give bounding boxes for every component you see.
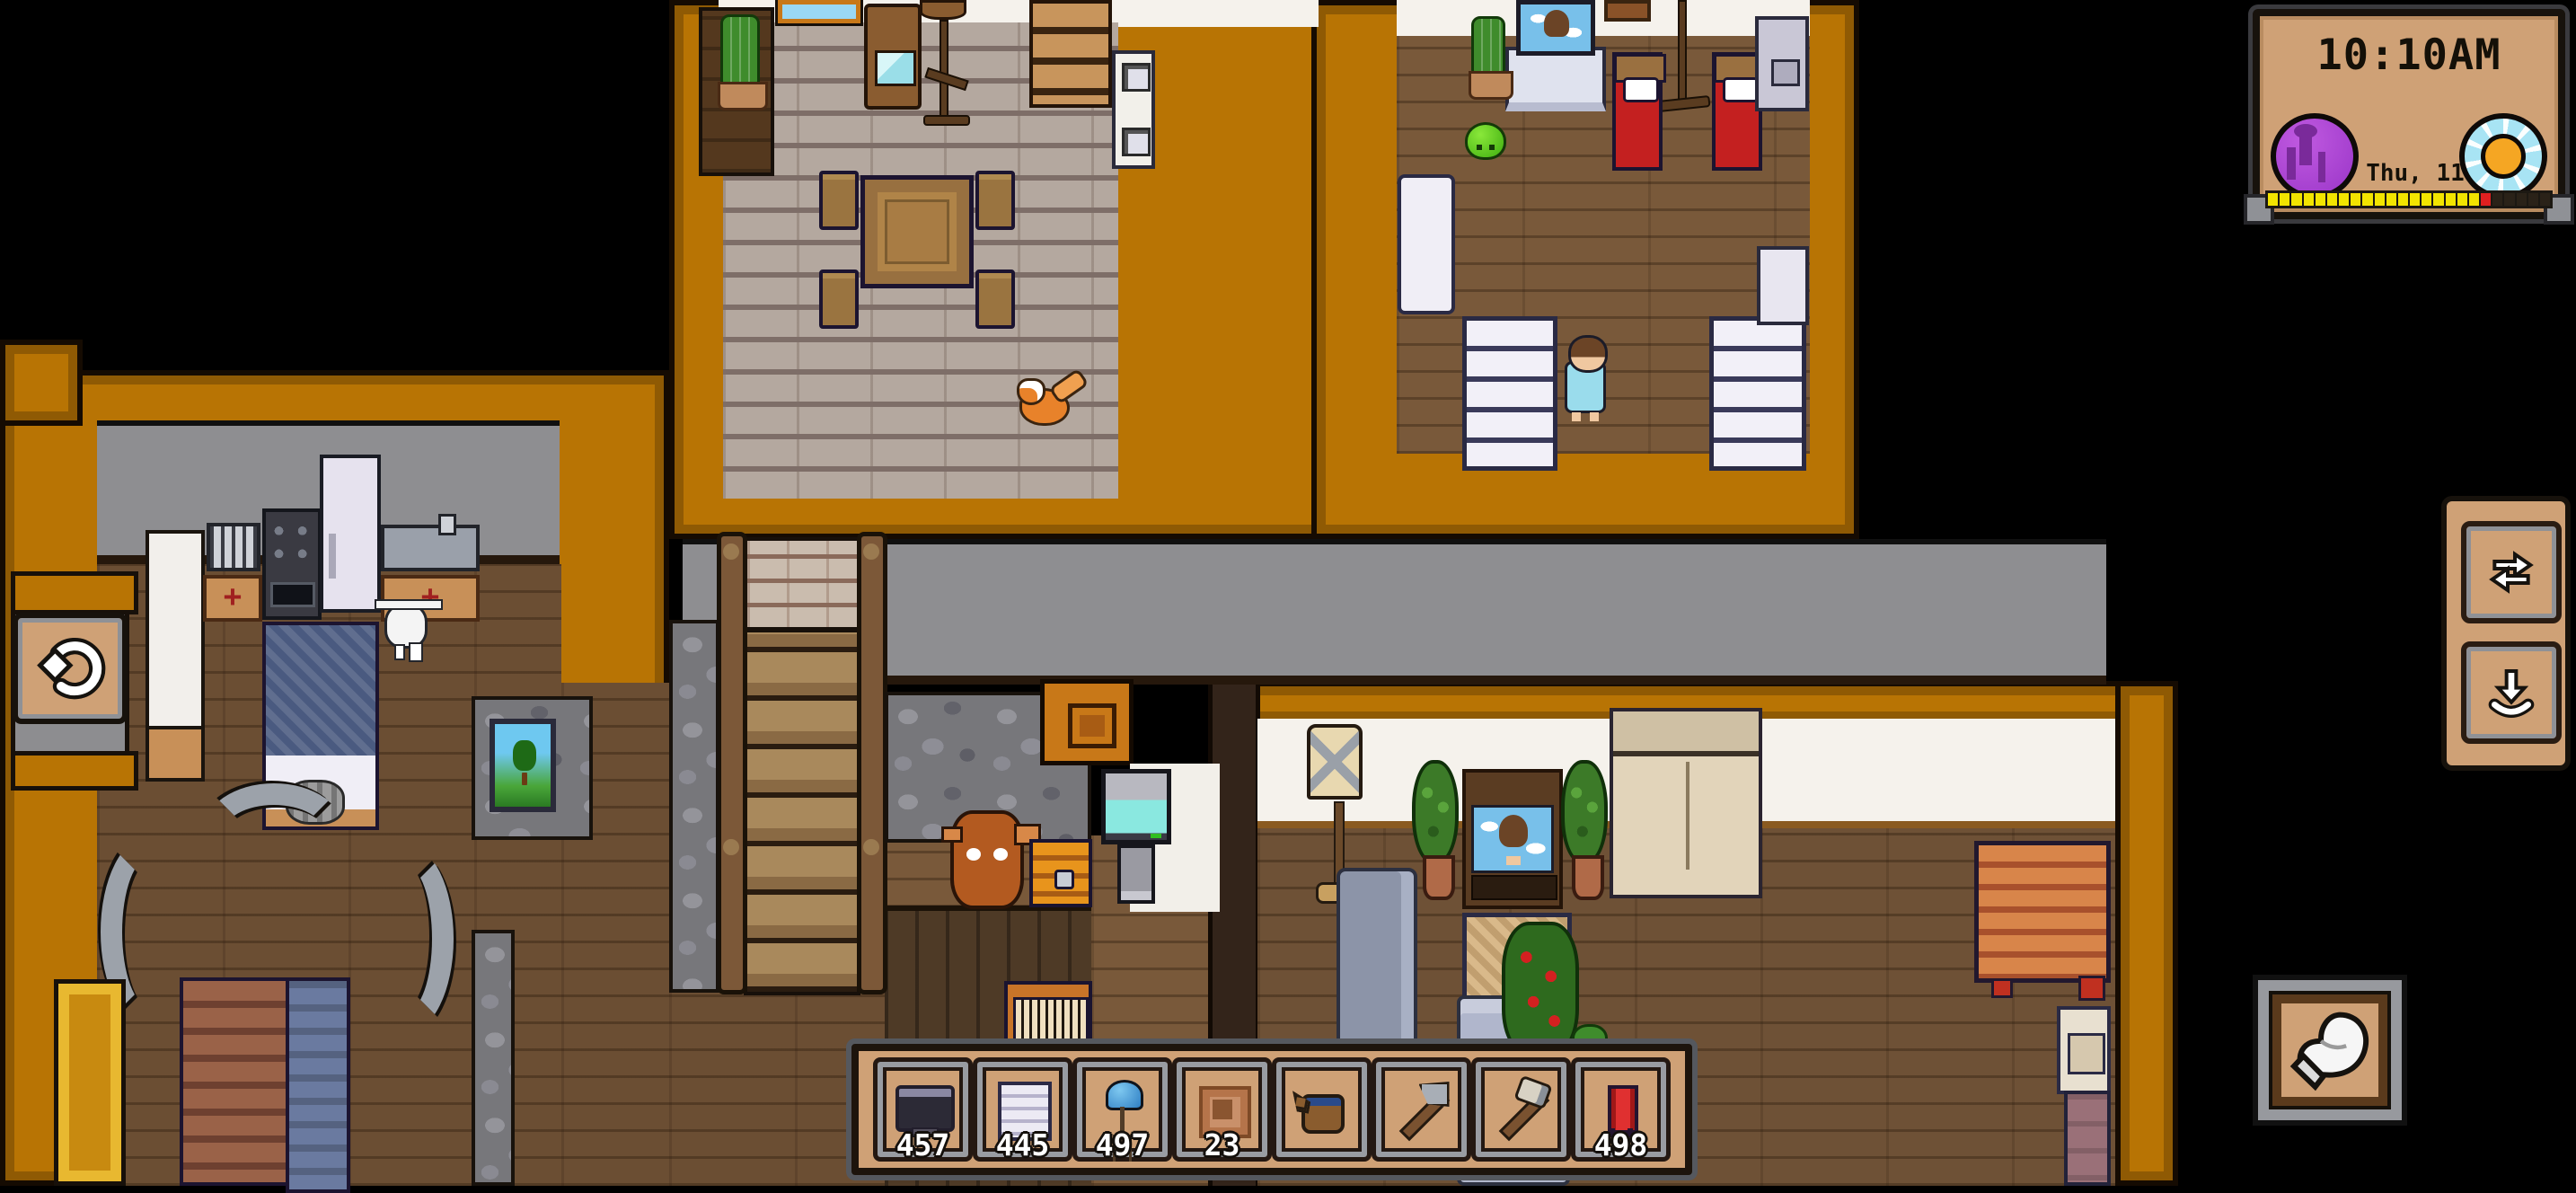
kitchen-counter-vert <box>146 530 205 729</box>
bedroom-dresser <box>1757 246 1809 325</box>
living-tv-screen <box>1471 805 1554 873</box>
mattress <box>1398 174 1455 314</box>
white-pedestal <box>2057 1006 2111 1094</box>
vanity-mirror <box>864 4 922 110</box>
item-quantity: 457 <box>878 1127 968 1162</box>
pickup-button[interactable] <box>2461 641 2562 744</box>
nightstand <box>1755 16 1809 111</box>
stairs-steps <box>744 629 860 995</box>
dock-structure <box>180 977 350 1186</box>
cabinet-1 <box>203 575 262 622</box>
dish-rack <box>207 523 260 571</box>
stairs-brick-top <box>744 537 860 631</box>
sideboard <box>1610 708 1762 898</box>
hotbar-slot-2[interactable]: 445 <box>973 1057 1072 1162</box>
landing-gray-wall <box>683 539 2106 685</box>
coat-rack-dining <box>940 20 948 120</box>
hand-button[interactable] <box>2253 975 2407 1126</box>
chair-sw <box>819 270 859 329</box>
tomato-plants <box>1502 922 1579 1056</box>
store-down-arrow-icon <box>2483 664 2540 721</box>
plant-left <box>1412 760 1459 864</box>
item-quantity: 23 <box>1177 1127 1267 1162</box>
hotbar-slot-5[interactable] <box>1272 1057 1372 1162</box>
item-quantity: 445 <box>977 1127 1068 1162</box>
bedroom-cactus <box>1471 16 1505 79</box>
hotbar: 457 445 497 23 498 <box>851 1044 1692 1175</box>
chair-ne <box>975 171 1015 230</box>
icon-frame-cabinet <box>1112 50 1155 169</box>
orange-wall-frag <box>0 340 83 426</box>
plant-right <box>1561 760 1608 864</box>
coat-rack-bedroom <box>1678 0 1687 106</box>
dining-window <box>778 0 860 23</box>
moon-orb-icon <box>2271 113 2359 199</box>
swap-arrows-icon <box>2483 543 2540 601</box>
item-quantity: 498 <box>1575 1127 1666 1162</box>
stairs-rail-left <box>717 532 747 994</box>
wooden-chest <box>1029 839 1092 907</box>
monitor-station <box>1101 769 1171 844</box>
claw-arc-east <box>359 844 454 1033</box>
cobble-left-of-stairs <box>669 620 719 993</box>
dining-shelf-unit <box>1029 0 1112 108</box>
slime-pet <box>1465 122 1506 160</box>
chair-se <box>975 270 1015 329</box>
gray-couch <box>1337 868 1417 1052</box>
hammer-item-icon <box>1492 1080 1551 1139</box>
undo-button[interactable] <box>13 613 128 724</box>
dining-table <box>860 175 974 288</box>
calf-pet <box>950 810 1024 909</box>
floor-lamp <box>1307 724 1363 800</box>
chair-nw <box>819 171 859 230</box>
clock-panel: 10:10AM Thu, 11 <box>2253 9 2565 219</box>
tree-picture <box>490 719 556 812</box>
sink <box>381 525 480 571</box>
orange-door-bl <box>54 979 126 1186</box>
kitchen-counter-base <box>146 726 205 782</box>
hotbar-slot-7[interactable] <box>1471 1057 1571 1162</box>
day-progress-bar <box>2265 190 2553 208</box>
watering-can-item-icon <box>1292 1080 1352 1139</box>
clock-time: 10:10AM <box>2260 31 2558 80</box>
cobble-column <box>472 930 515 1186</box>
hotbar-slot-8[interactable]: 498 <box>1571 1057 1671 1162</box>
mauve-column <box>2064 1091 2111 1186</box>
hotbar-slot-4[interactable]: 23 <box>1172 1057 1272 1162</box>
side-button-panel <box>2441 496 2571 771</box>
fridge <box>320 455 381 613</box>
crib-left <box>1462 316 1557 471</box>
swap-button[interactable] <box>2461 521 2562 623</box>
robot-drone <box>384 604 428 649</box>
hotbar-slot-3[interactable]: 497 <box>1072 1057 1172 1162</box>
stove <box>262 508 322 620</box>
glove-icon <box>2277 996 2382 1104</box>
undo-arrow-icon <box>32 632 108 704</box>
fox <box>1019 388 1070 426</box>
bedroom-tv <box>1516 0 1595 56</box>
bedroom-tv-table <box>1505 47 1606 111</box>
dining-cactus <box>720 14 760 90</box>
monitor-pedestal <box>1117 844 1155 904</box>
hotbar-slot-1[interactable]: 457 <box>873 1057 973 1162</box>
orange-table <box>1974 841 2111 983</box>
hotbar-slot-6[interactable] <box>1372 1057 1471 1162</box>
stairs-rail-right <box>857 532 887 994</box>
axe-item-icon <box>1392 1080 1451 1139</box>
item-quantity: 497 <box>1077 1127 1168 1162</box>
clock-date: Thu, 11 <box>2350 160 2481 187</box>
bedroom-wall-frame <box>1604 0 1651 22</box>
basket <box>920 0 966 20</box>
crib-right <box>1709 316 1806 471</box>
crate-emblem-wall <box>1040 679 1134 765</box>
toddler <box>1565 361 1606 413</box>
claw-arc-north <box>202 783 346 882</box>
living-room-right-wall <box>2115 681 2178 1186</box>
red-bed-1 <box>1612 52 1663 171</box>
